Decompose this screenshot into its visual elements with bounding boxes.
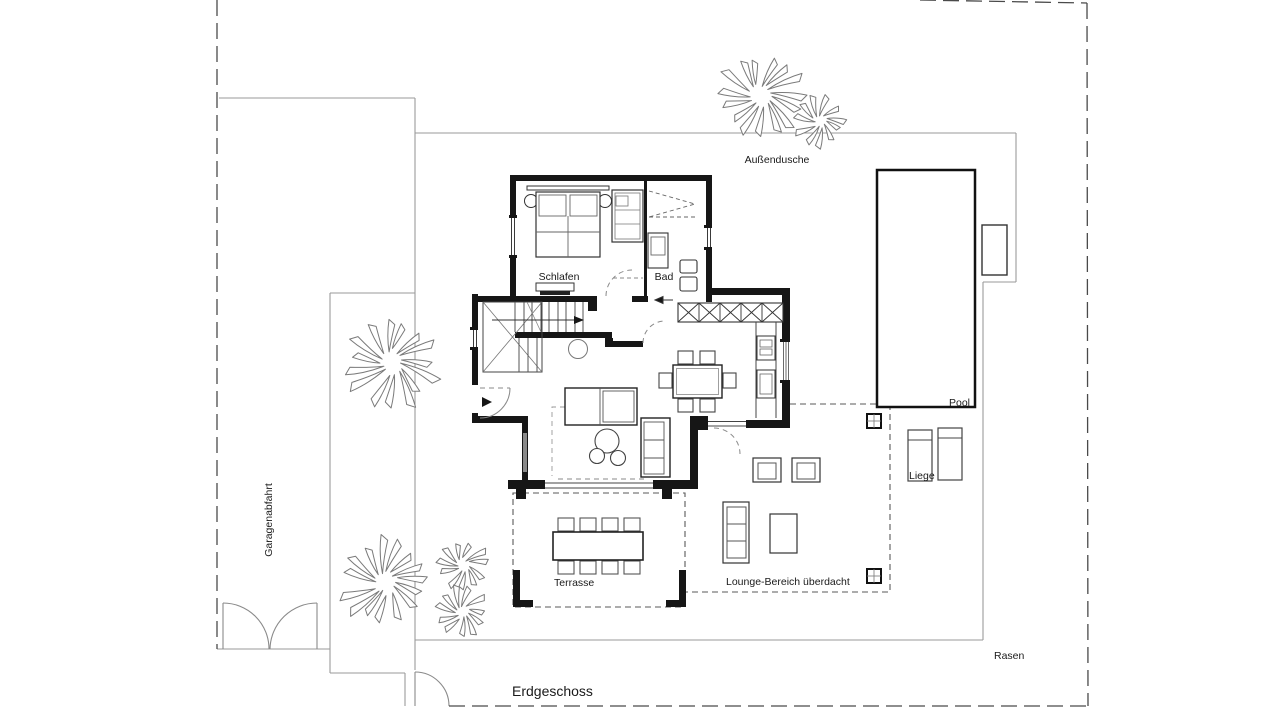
kitchen-counter <box>678 303 783 322</box>
wall-bath-right-b <box>706 247 712 302</box>
wall-bedroom-top <box>510 175 712 181</box>
sofa <box>565 388 637 425</box>
wall-kitchen-right-b <box>782 380 790 425</box>
tree-icon <box>435 585 484 636</box>
toilet <box>680 260 697 273</box>
bed-headboard <box>527 186 609 190</box>
label-aussendusche: Außendusche <box>745 154 810 166</box>
terrace-table <box>553 532 643 560</box>
wall-south-chunk-left <box>508 480 545 489</box>
coffee-tables <box>590 429 626 466</box>
boundary-top <box>920 0 1087 3</box>
label-bad: Bad <box>655 271 674 283</box>
window-bath-east <box>708 228 711 247</box>
sun-lounger-right <box>938 428 962 480</box>
roof-column-crosses <box>867 414 881 583</box>
wall-bedroom-bottom <box>472 296 597 302</box>
pillow-right <box>570 195 597 216</box>
pedestrian-gate <box>415 672 449 706</box>
window-bedroom-west <box>512 218 515 255</box>
chaise-lounge <box>641 418 670 477</box>
floorplan-drawing: Außendusche Schlafen Bad Pool Liege Terr… <box>0 0 1280 720</box>
closet-dashed-icon <box>649 191 695 217</box>
wall-bath-right-a <box>706 175 712 228</box>
wall-bedroom-left-a <box>510 175 516 218</box>
dining-table <box>673 365 722 398</box>
dining-set <box>659 351 736 412</box>
tree-icon <box>340 535 427 623</box>
bath-door <box>643 321 665 343</box>
wall-living-stub <box>690 416 708 430</box>
pool <box>877 170 975 407</box>
living-room <box>552 388 670 477</box>
bidet <box>680 277 697 291</box>
roof-columns <box>867 414 881 583</box>
wall-south-tab-left <box>516 489 526 499</box>
tree-icon <box>794 95 847 150</box>
wall-stair-step <box>605 338 613 347</box>
tree-icon <box>718 58 807 136</box>
wall-west-b <box>472 347 478 385</box>
label-lounge-bereich: Lounge-Bereich überdacht <box>726 576 850 588</box>
label-erdgeschoss: Erdgeschoss <box>512 683 593 699</box>
lounge-furniture <box>723 458 820 563</box>
wall-stair-notch <box>588 302 597 311</box>
wardrobe <box>612 190 643 242</box>
wall-hall <box>613 341 643 347</box>
wall-west-c <box>472 413 478 418</box>
label-garagenabfahrt: Garagenabfahrt <box>263 483 275 557</box>
wall-entry-bottom <box>472 416 528 423</box>
floorplan-canvas: Außendusche Schlafen Bad Pool Liege Terr… <box>0 0 1280 720</box>
label-schlafen: Schlafen <box>539 271 580 283</box>
tree-icon <box>346 319 441 408</box>
wall-kitchen-bottom <box>746 420 790 428</box>
wall-bedroom-left-b <box>510 255 516 302</box>
wall-living-right <box>690 430 698 480</box>
window-living-left <box>523 433 527 472</box>
lounge-table <box>770 514 797 553</box>
driveway-gate <box>223 603 317 649</box>
wall-kitchen-top <box>712 288 790 295</box>
label-rasen: Rasen <box>994 650 1025 662</box>
lounge-armchair-left <box>753 458 781 482</box>
label-liege: Liege <box>909 470 935 482</box>
wall-west-a <box>472 294 478 330</box>
wall-bed-bath-partition <box>644 181 647 296</box>
terrace-furniture <box>553 518 643 574</box>
lounge-door <box>714 428 740 454</box>
wall-bedroom-bottom-stub <box>632 296 648 302</box>
label-terrasse: Terrasse <box>554 577 594 589</box>
wall-stair-mid <box>515 332 612 338</box>
bedroom-sideboard <box>536 283 574 291</box>
boundary-right <box>1087 3 1088 706</box>
window-stair-west <box>474 330 477 347</box>
hall-circle <box>569 340 588 359</box>
window-kitchen-east <box>784 342 789 380</box>
tree-icon <box>436 543 488 590</box>
bedroom-door <box>606 270 632 296</box>
wall-south-chunk-right <box>653 480 698 489</box>
kitchen-tall-units <box>756 322 776 418</box>
lounge-armchair-right <box>792 458 820 482</box>
pool-side-bench <box>982 225 1007 275</box>
entry-arrow-icon <box>482 397 492 407</box>
terrace-posts <box>513 570 686 607</box>
rug-outline <box>552 407 565 476</box>
lounge-sofa <box>723 502 749 563</box>
pillow-left <box>539 195 566 216</box>
corridor-arrow-icon <box>655 297 673 304</box>
label-pool: Pool <box>949 397 970 409</box>
wall-south-tab-right <box>662 489 672 499</box>
